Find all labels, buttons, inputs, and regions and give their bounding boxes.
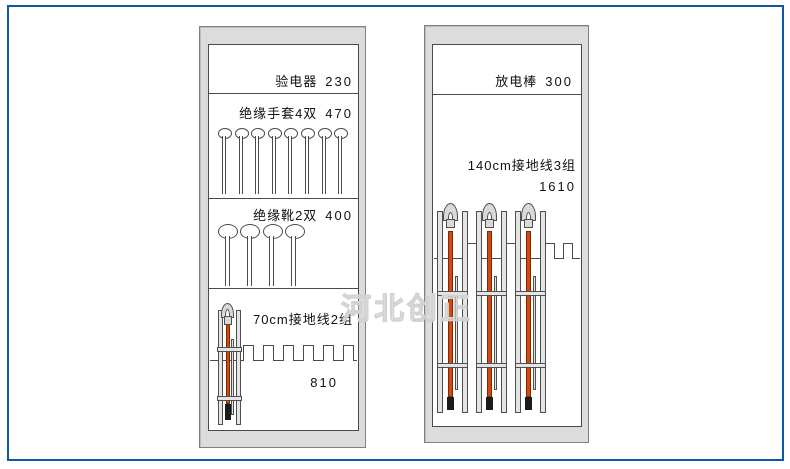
wire-clamp <box>446 219 455 228</box>
grounding-rod-orange <box>526 231 531 397</box>
wire-clamp <box>224 316 232 325</box>
hanger-rod-left <box>476 211 482 413</box>
crossbar-lower <box>437 363 468 368</box>
grounding-rod-tip <box>525 397 532 410</box>
grounding-wire-set <box>437 203 468 413</box>
grounding-rod-tip <box>447 397 454 410</box>
hanger-rod-left <box>515 211 521 413</box>
crossbar-upper <box>515 291 546 296</box>
grounding-rod-tip <box>486 397 493 410</box>
hanger-rod-right <box>501 211 507 413</box>
hanger-rod-left <box>218 310 223 425</box>
wire-clamp <box>524 219 533 228</box>
diagram-canvas: 河北创正 验电器230 绝缘手套4双470 绝缘靴2双400 70cm接地线2组… <box>0 0 790 469</box>
crossbar-upper <box>437 291 468 296</box>
hanger-rod-right <box>540 211 546 413</box>
grounding-rod-orange <box>226 324 230 404</box>
right-cabinet-panel: 放电棒300 140cm接地线3组 1610 <box>432 44 582 427</box>
crossbar-upper <box>217 347 242 352</box>
page-border <box>7 5 784 461</box>
crossbar-lower <box>217 396 242 401</box>
crossbar-upper <box>476 291 507 296</box>
hanger-rod-left <box>437 211 443 413</box>
grounding-rod-orange <box>487 231 492 397</box>
wire-clamp <box>485 219 494 228</box>
grounding-wire-sets <box>209 45 358 430</box>
crossbar-lower <box>515 363 546 368</box>
grounding-wire-set <box>217 303 242 425</box>
hanger-rod-right <box>236 310 241 425</box>
grounding-wire-set <box>515 203 546 413</box>
left-cabinet-panel: 验电器230 绝缘手套4双470 绝缘靴2双400 70cm接地线2组 810 <box>208 44 359 431</box>
grounding-rod-orange <box>448 231 453 397</box>
left-cabinet: 验电器230 绝缘手套4双470 绝缘靴2双400 70cm接地线2组 810 <box>199 26 366 448</box>
crossbar-lower <box>476 363 507 368</box>
grounding-wire-sets <box>433 45 581 426</box>
grounding-wire-set <box>476 203 507 413</box>
right-cabinet: 放电棒300 140cm接地线3组 1610 <box>424 25 589 443</box>
hanger-rod-right <box>462 211 468 413</box>
